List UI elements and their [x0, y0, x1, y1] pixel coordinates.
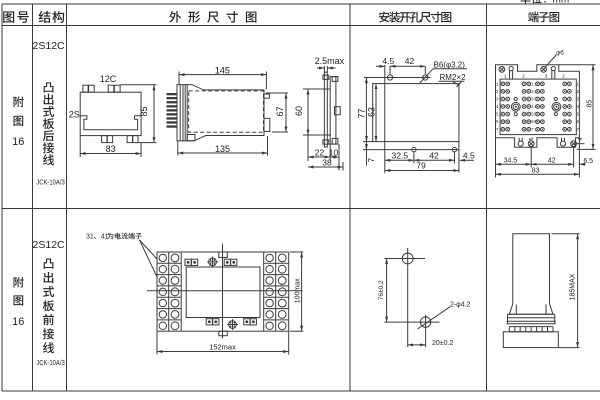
svg-text:2.5max: 2.5max [315, 56, 345, 66]
svg-text:42: 42 [405, 56, 415, 66]
svg-text:63: 63 [367, 107, 377, 117]
svg-text:60: 60 [294, 106, 304, 116]
svg-text:185MAX: 185MAX [570, 273, 577, 300]
svg-text:2: 2 [496, 89, 499, 94]
svg-text:31、41: 31、41 [86, 234, 109, 241]
svg-text:3: 3 [496, 97, 499, 102]
svg-text:42: 42 [429, 150, 439, 160]
svg-text:100max: 100max [294, 278, 301, 303]
svg-text:5: 5 [496, 112, 499, 117]
svg-text:79: 79 [416, 161, 426, 171]
svg-text:2S12C: 2S12C [33, 239, 66, 251]
svg-text:JCK-10A/3: JCK-10A/3 [36, 358, 65, 367]
svg-text:JCK-10A/3: JCK-10A/3 [36, 177, 65, 186]
svg-text:67: 67 [275, 106, 285, 116]
svg-text:2S12C: 2S12C [33, 40, 66, 52]
svg-text:42: 42 [548, 158, 556, 165]
svg-text:：mm: ：mm [543, 0, 570, 6]
svg-text:6: 6 [496, 119, 499, 124]
svg-text:4: 4 [578, 138, 584, 141]
svg-text:6.5: 6.5 [583, 158, 593, 165]
svg-text:4.5: 4.5 [382, 56, 394, 66]
svg-text:2: 2 [562, 74, 565, 79]
svg-text:φ8: φ8 [529, 136, 535, 141]
svg-text:77: 77 [357, 108, 367, 118]
svg-text:7: 7 [496, 127, 499, 132]
svg-text:φ6: φ6 [556, 50, 564, 57]
svg-text:85: 85 [587, 100, 594, 108]
svg-text:4.5: 4.5 [463, 150, 475, 160]
svg-text:38: 38 [322, 157, 332, 167]
svg-text:1: 1 [504, 74, 507, 79]
svg-text:4: 4 [496, 104, 499, 109]
svg-text:83: 83 [532, 168, 540, 175]
svg-text:145: 145 [215, 65, 230, 75]
svg-text:12C: 12C [100, 74, 117, 84]
svg-text:16: 16 [12, 136, 24, 148]
svg-text:16: 16 [12, 316, 24, 328]
svg-text:1: 1 [496, 81, 499, 86]
svg-text:B6(φ3.2): B6(φ3.2) [434, 61, 466, 70]
svg-text:152max: 152max [209, 343, 236, 352]
svg-text:7: 7 [367, 157, 376, 162]
svg-text:20±0.2: 20±0.2 [432, 340, 453, 347]
svg-text:2-φ4.2: 2-φ4.2 [450, 301, 471, 308]
svg-text:32.5: 32.5 [392, 150, 409, 160]
svg-text:RM2×2: RM2×2 [440, 73, 467, 82]
svg-text:22: 22 [315, 148, 325, 158]
svg-text:2: 2 [522, 74, 525, 79]
svg-text:76±0.2: 76±0.2 [378, 280, 385, 300]
svg-text:2S: 2S [69, 110, 80, 120]
svg-text:3: 3 [545, 74, 548, 79]
svg-text:135: 135 [215, 144, 230, 154]
svg-text:10: 10 [329, 148, 339, 158]
svg-text:85: 85 [139, 106, 149, 116]
svg-text:34.5: 34.5 [504, 158, 518, 165]
svg-text:83: 83 [106, 144, 116, 154]
